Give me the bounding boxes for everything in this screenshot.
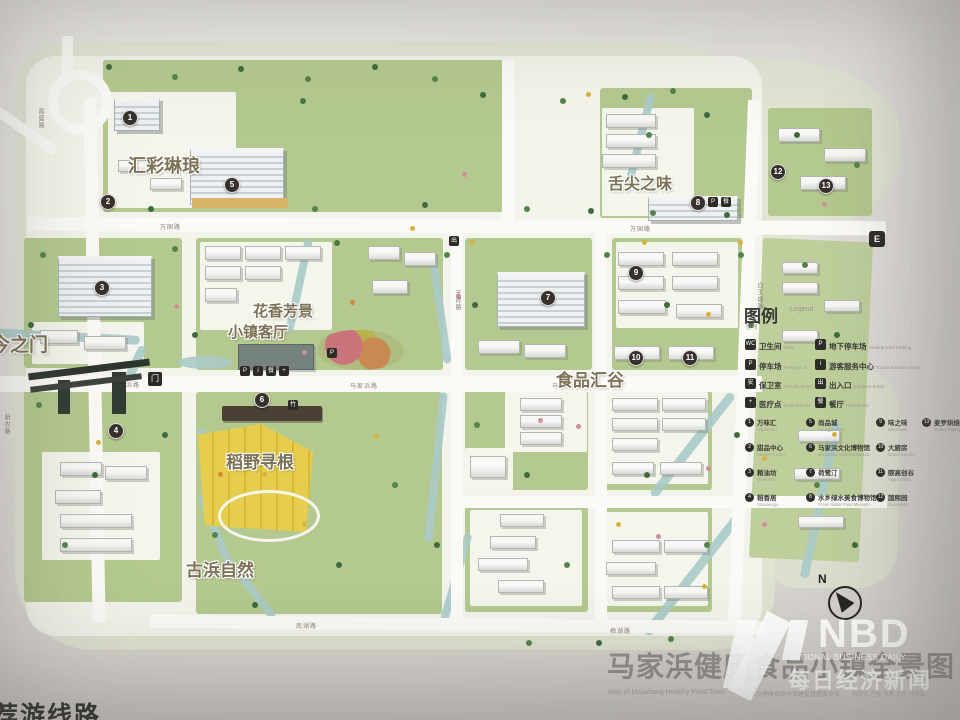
legend-place: 2甜品中心Dessert Center: [745, 443, 785, 461]
building: [664, 540, 708, 553]
building: [824, 300, 860, 312]
map-marker: 6: [254, 392, 270, 408]
restaurant-badge: 餐: [266, 366, 276, 376]
building: [470, 456, 506, 478]
building: [672, 276, 718, 290]
building: [500, 514, 544, 527]
building: [205, 288, 237, 302]
road-center-top-v: [502, 60, 514, 222]
building: [782, 262, 818, 274]
legend-place: 5尚品城Shangpin City: [806, 418, 844, 436]
restaurant-icon: 餐: [815, 397, 826, 408]
building: [602, 154, 656, 168]
legend-title-en: Legend: [790, 306, 813, 313]
legend-title-sub: 범례: [746, 322, 757, 331]
building: [60, 538, 132, 552]
zone-label-shipin: 食品汇谷: [556, 366, 624, 391]
legend-facility-medical: +医疗点Medical Point: [745, 394, 811, 412]
parcel-shejian-east: [768, 108, 872, 216]
building: [606, 114, 656, 128]
legend-place: 12国熙园Guoxiyuan: [876, 493, 908, 511]
bamboo-badge: 竹: [288, 400, 298, 410]
legend-place: 1万味汇Wanweihui: [745, 418, 777, 436]
building: [55, 490, 101, 504]
map-subtitle-en: Map of Majiabang Healthy Food Town: [608, 689, 725, 696]
legend-place: 6马家浜文化博物馆Majiabang Culture Museum: [806, 443, 870, 461]
entrance-e-badge: E: [869, 231, 885, 247]
nbd-tagline: NATIONAL BUSINESS DAILY: [788, 653, 906, 662]
building: [824, 148, 866, 162]
legend-place: 7荷鹭汀Heluting: [806, 468, 838, 486]
map-marker: 7: [540, 290, 556, 306]
medical-icon: +: [745, 397, 756, 408]
legend-place: 4稻香居Daoxiangju: [745, 493, 778, 511]
building: [778, 128, 820, 142]
building-6-museum: [222, 406, 322, 421]
building: [84, 336, 126, 350]
legend-place: 9味之味Weizhiwei: [876, 418, 908, 436]
field-path-loop: [218, 490, 320, 542]
exit-badge: 出: [449, 236, 459, 246]
building: [672, 252, 718, 266]
zone-label-huicai: 汇彩琳琅: [128, 152, 200, 178]
nbd-brand-cn: 每日经济新闻: [788, 663, 932, 695]
map-marker: 9: [628, 265, 644, 281]
map-photo: 万国路 万国路 马家浜路 马家浜路 马家浜路 天祥路 白玉塘路 南湖路 梅湖路 …: [0, 0, 960, 720]
building: [618, 252, 664, 266]
road-label: 马家浜路: [350, 381, 378, 390]
building: [285, 246, 321, 260]
parking-badge: P: [327, 348, 337, 358]
medical-badge: +: [279, 366, 289, 376]
building: [245, 266, 281, 280]
building: [245, 246, 281, 260]
legend-place: 11颐高创谷Yigao Valley: [876, 468, 914, 486]
road-label: 万国路: [160, 222, 181, 231]
building: [205, 266, 241, 280]
building: [612, 398, 658, 411]
tour-route-corner-text: 推荐游线路: [0, 696, 101, 720]
building: [150, 178, 182, 190]
building: [524, 344, 566, 358]
trees: [106, 64, 112, 70]
map-marker: 1: [122, 110, 138, 126]
legend-facility-restaurant: 餐餐厅Restaurant: [815, 394, 868, 412]
info-badge: i: [253, 366, 263, 376]
building: [368, 246, 400, 260]
building: [662, 418, 706, 431]
building: [664, 586, 708, 599]
legend-facility-toilet: WC卫生间Toilet: [745, 336, 794, 354]
parking-icon: P: [745, 359, 756, 370]
road-label: 万国路: [630, 224, 651, 233]
map-marker: 2: [100, 194, 116, 210]
building: [60, 514, 132, 528]
underground-parking-icon: P: [815, 339, 826, 350]
building: [612, 462, 654, 475]
building: [520, 432, 562, 445]
security-icon: 安: [745, 378, 756, 389]
legend-facility-visitor-center: i游客服务中心Tourist Service Center: [815, 356, 920, 374]
parking-badge: P: [240, 366, 250, 376]
building: [612, 586, 660, 599]
building: [520, 398, 562, 411]
building: [612, 418, 658, 431]
restaurant-badge: 餐: [721, 197, 731, 207]
gate-badge: 门: [148, 372, 162, 386]
road-label: 天祥路: [453, 290, 462, 311]
map-marker: 5: [224, 177, 240, 193]
map-marker: 12: [770, 164, 786, 180]
building-5: [190, 148, 284, 205]
building: [782, 282, 818, 294]
building: [372, 280, 408, 294]
building: [478, 340, 520, 354]
zone-label-shejian: 舌尖之味: [608, 170, 672, 194]
zone-label-huaxiang: 花香芳景: [253, 300, 313, 321]
building: [606, 562, 656, 575]
legend-place: 8水乡绿水美食博物馆Green Water Food Museum: [806, 493, 877, 511]
building: [612, 540, 660, 553]
legend-place: 10大厨房Grand Kitchen: [876, 443, 915, 461]
map-marker: 8: [690, 195, 706, 211]
building: [520, 415, 562, 428]
zone-label-gate: 古今之门: [0, 330, 48, 357]
legend-place: 3粮油坊Grain Mill: [745, 468, 777, 486]
legend-place: 13麦罗烘焙Mailuo Bakery: [922, 418, 960, 436]
building: [60, 462, 102, 476]
building: [798, 516, 844, 528]
road-label: 南湖路: [296, 621, 317, 630]
building: [404, 252, 436, 266]
toilet-icon: WC: [745, 339, 756, 350]
road-stub-up: [62, 36, 73, 76]
plaza-strip: [192, 198, 288, 208]
map-marker: 3: [94, 280, 110, 296]
compass-n-label: N: [818, 572, 827, 586]
building: [498, 580, 544, 593]
building: [205, 246, 241, 260]
map-marker: 11: [682, 350, 698, 366]
building: [662, 398, 706, 411]
building: [660, 462, 702, 475]
legend-facility-parking: P停车场Parking Lot: [745, 356, 806, 374]
building: [478, 558, 528, 571]
entrance-icon: 出: [815, 378, 826, 389]
zone-label-keting: 小镇客厅: [228, 321, 288, 342]
legend-facility-security: 安保卫室Security Room: [745, 375, 813, 393]
building: [676, 304, 722, 318]
road-label: 昌盛路: [36, 108, 45, 129]
nbd-brand-text: NBD: [818, 612, 911, 657]
zone-label-gubang: 古浜自然: [186, 556, 254, 581]
building: [105, 466, 147, 480]
info-icon: i: [815, 359, 826, 370]
map-marker: 4: [108, 423, 124, 439]
building: [618, 300, 666, 314]
building: [606, 134, 656, 148]
map-marker: 13: [818, 178, 834, 194]
zone-label-daoye: 稻野寻根: [226, 448, 294, 473]
road-label: 新农路: [2, 414, 11, 435]
legend-facility-underground-parking: P地下停车场Underground Parking: [815, 336, 911, 354]
building: [490, 536, 536, 549]
parking-badge: P: [708, 197, 718, 207]
flower-dots: [410, 226, 415, 231]
legend-facility-entrance: 出出入口Entrance & Exit: [815, 375, 885, 393]
building: [612, 438, 658, 451]
pond: [178, 356, 232, 369]
road-label: 梅湖路: [610, 626, 631, 635]
map-marker: 10: [628, 350, 644, 366]
roundabout: [48, 70, 112, 134]
